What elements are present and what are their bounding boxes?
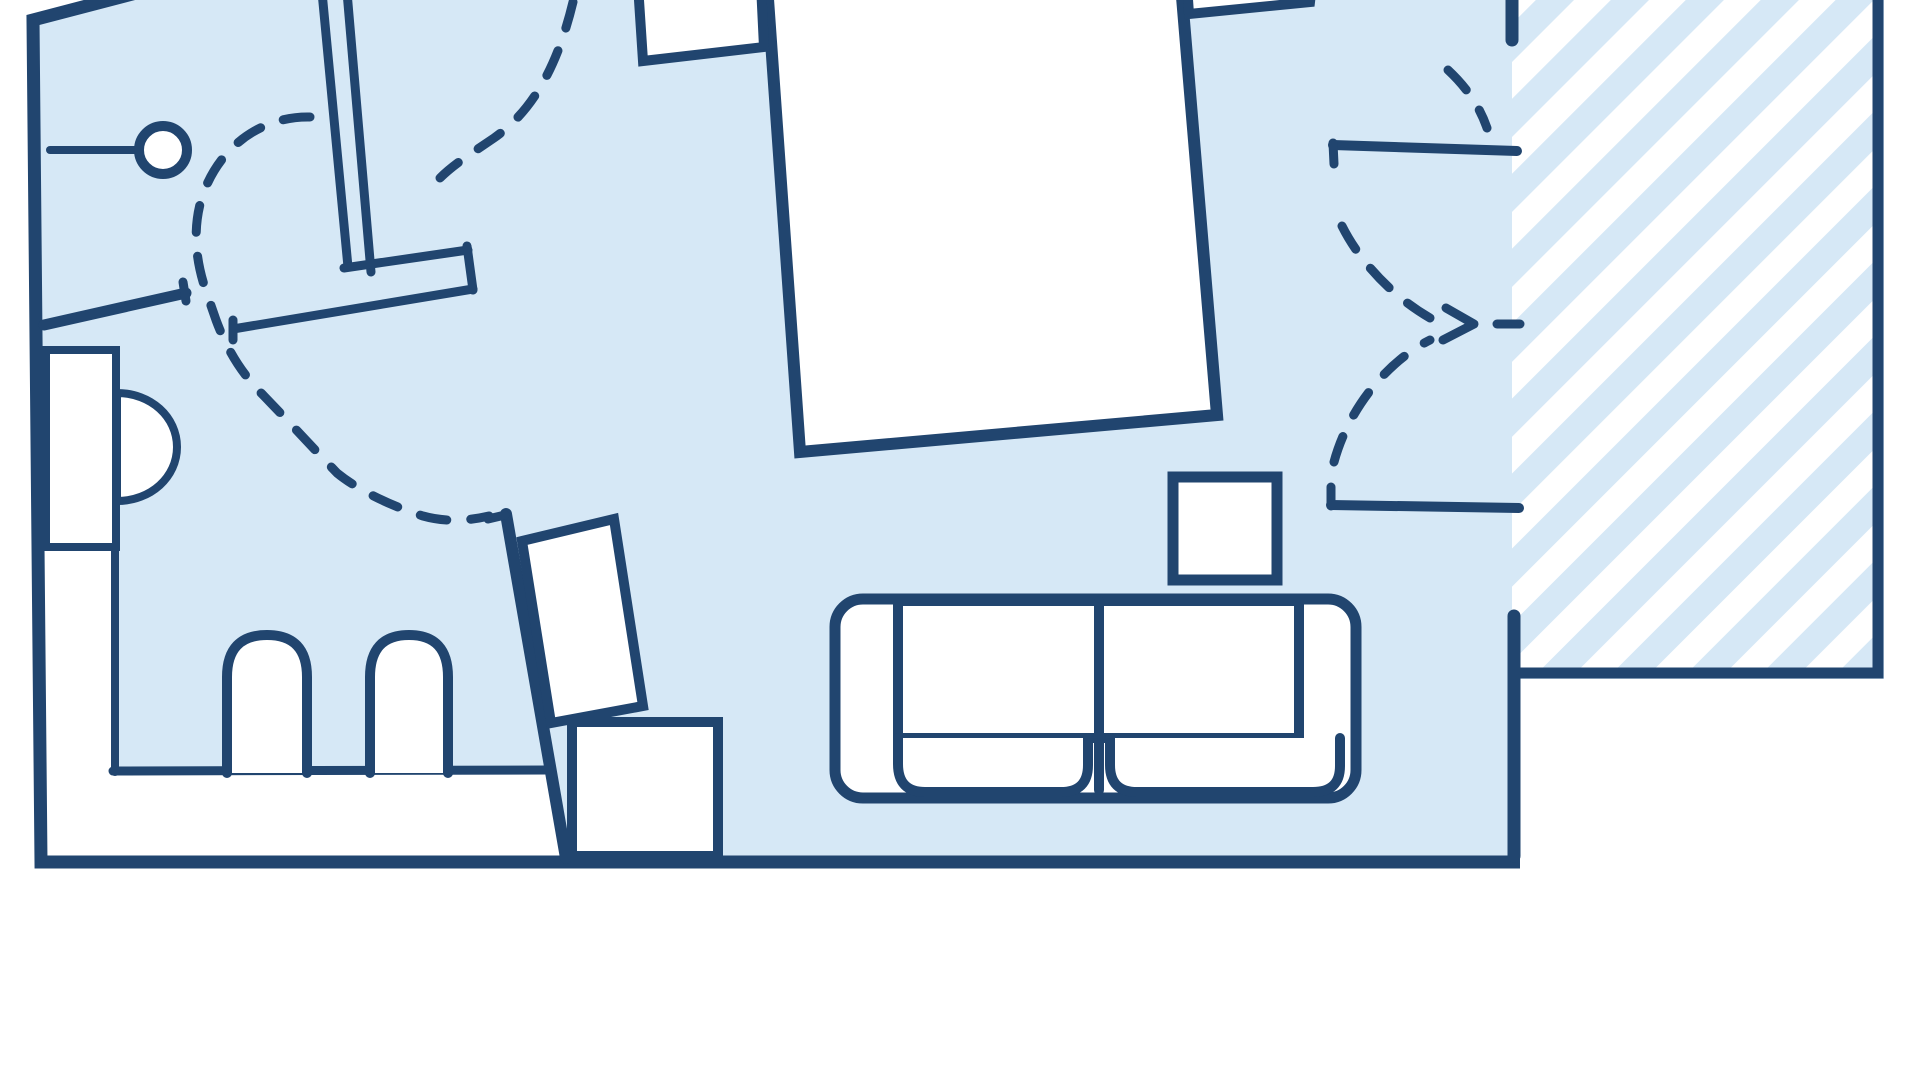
dining-recess-area <box>113 771 568 868</box>
sofa-cushion-right <box>1110 738 1340 792</box>
nook-wall-bottom <box>1331 505 1519 508</box>
nook-wall-top <box>1333 145 1517 151</box>
floor-plan <box>0 0 1920 1080</box>
balcony-floor-hatch <box>1512 0 1874 674</box>
nightstand-left <box>638 0 764 61</box>
bottom-cabinet <box>572 722 718 856</box>
kitchen-counter <box>46 350 116 547</box>
nook-jamb-top <box>1333 143 1334 164</box>
bench-edge-line <box>113 770 549 771</box>
slanted-wall-tick <box>488 515 505 519</box>
bathroom-wall-cap <box>183 282 186 301</box>
bed <box>767 0 1217 452</box>
sofa-cushion-left <box>898 738 1088 792</box>
recess-left-area <box>40 545 117 875</box>
floor-plan-canvas <box>0 0 1920 1080</box>
wall-fixture-circle <box>139 126 187 174</box>
hall-wall-cap <box>467 246 473 290</box>
side-table <box>1173 477 1277 580</box>
chair-arch-1 <box>227 635 307 773</box>
plan-layers <box>33 0 1884 875</box>
chair-arch-2 <box>370 635 448 773</box>
